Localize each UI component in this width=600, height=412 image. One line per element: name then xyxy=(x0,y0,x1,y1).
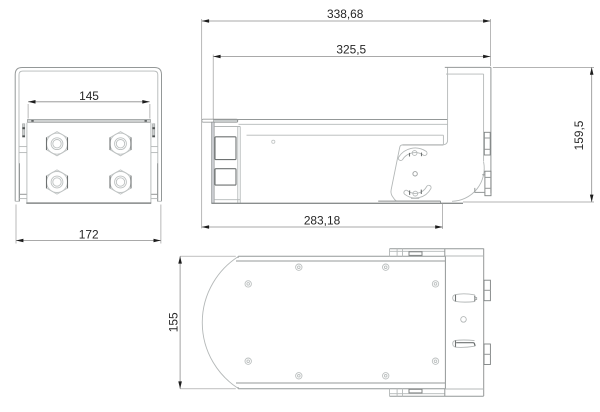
svg-text:338,68: 338,68 xyxy=(327,7,364,21)
svg-text:283,18: 283,18 xyxy=(304,214,341,228)
svg-text:325,5: 325,5 xyxy=(336,43,366,57)
svg-text:155: 155 xyxy=(167,312,181,332)
svg-text:145: 145 xyxy=(79,89,99,103)
svg-text:172: 172 xyxy=(79,227,99,241)
svg-text:159,5: 159,5 xyxy=(572,120,586,150)
